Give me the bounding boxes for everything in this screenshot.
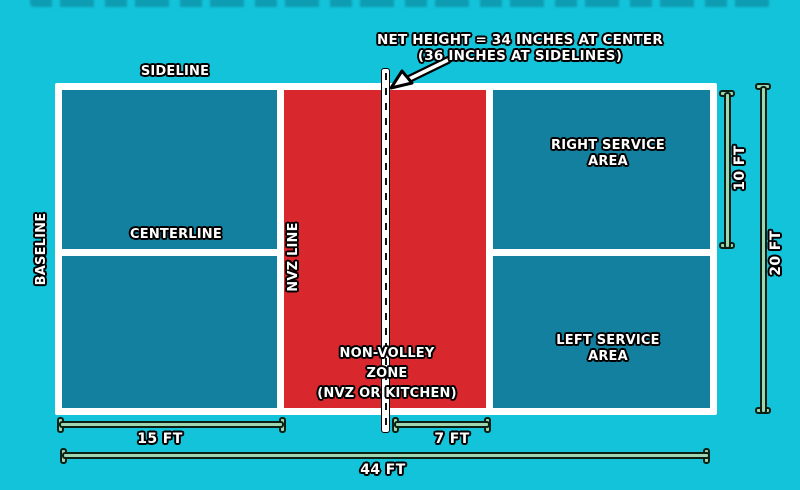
nvz-zone-line3: (NVZ OR KITCHEN) [297, 384, 477, 404]
ruler-20ft-label: 20 FT [768, 213, 788, 293]
non-volley-zone-label: NON-VOLLEY ZONE (NVZ OR KITCHEN) [297, 344, 477, 404]
ruler-44ft-label: 44 FT [333, 462, 433, 479]
right-service-area-box [493, 90, 710, 249]
ruler-20ft-line [760, 86, 767, 414]
net-height-line1: NET HEIGHT = 34 INCHES AT CENTER [370, 32, 670, 48]
ruler-44ft-line [62, 452, 710, 459]
right-service-area-label: RIGHT SERVICE AREA [518, 138, 698, 169]
pickleball-court-diagram: NET HEIGHT = 34 INCHES AT CENTER (36 INC… [0, 0, 800, 490]
right-service-line2: AREA [518, 154, 698, 170]
sideline-label: SIDELINE [105, 64, 245, 80]
ruler-10ft-label: 10 FT [732, 128, 752, 208]
ruler-15ft-line [59, 421, 284, 428]
left-service-area-box [493, 256, 710, 408]
ruler-7ft-label: 7 FT [402, 431, 502, 448]
right-service-line1: RIGHT SERVICE [518, 138, 698, 154]
baseline-label: BASELINE [34, 185, 54, 313]
left-service-line1: LEFT SERVICE [518, 333, 698, 349]
net-height-annotation: NET HEIGHT = 34 INCHES AT CENTER (36 INC… [370, 32, 670, 64]
nvz-zone-line1: NON-VOLLEY [297, 344, 477, 364]
cutoff-title-band [30, 0, 770, 7]
left-top-service-box [62, 90, 277, 249]
left-bottom-service-box [62, 256, 277, 408]
ruler-7ft-line [394, 421, 490, 428]
left-service-line2: AREA [518, 349, 698, 365]
net-height-line2: (36 INCHES AT SIDELINES) [370, 48, 670, 64]
centerline-label: CENTERLINE [106, 227, 246, 243]
nvz-line-label: NVZ LINE [286, 193, 306, 321]
ruler-15ft-label: 15 FT [110, 431, 210, 448]
nvz-zone-line2: ZONE [297, 364, 477, 384]
left-service-area-label: LEFT SERVICE AREA [518, 333, 698, 364]
ruler-10ft-line [724, 92, 731, 249]
